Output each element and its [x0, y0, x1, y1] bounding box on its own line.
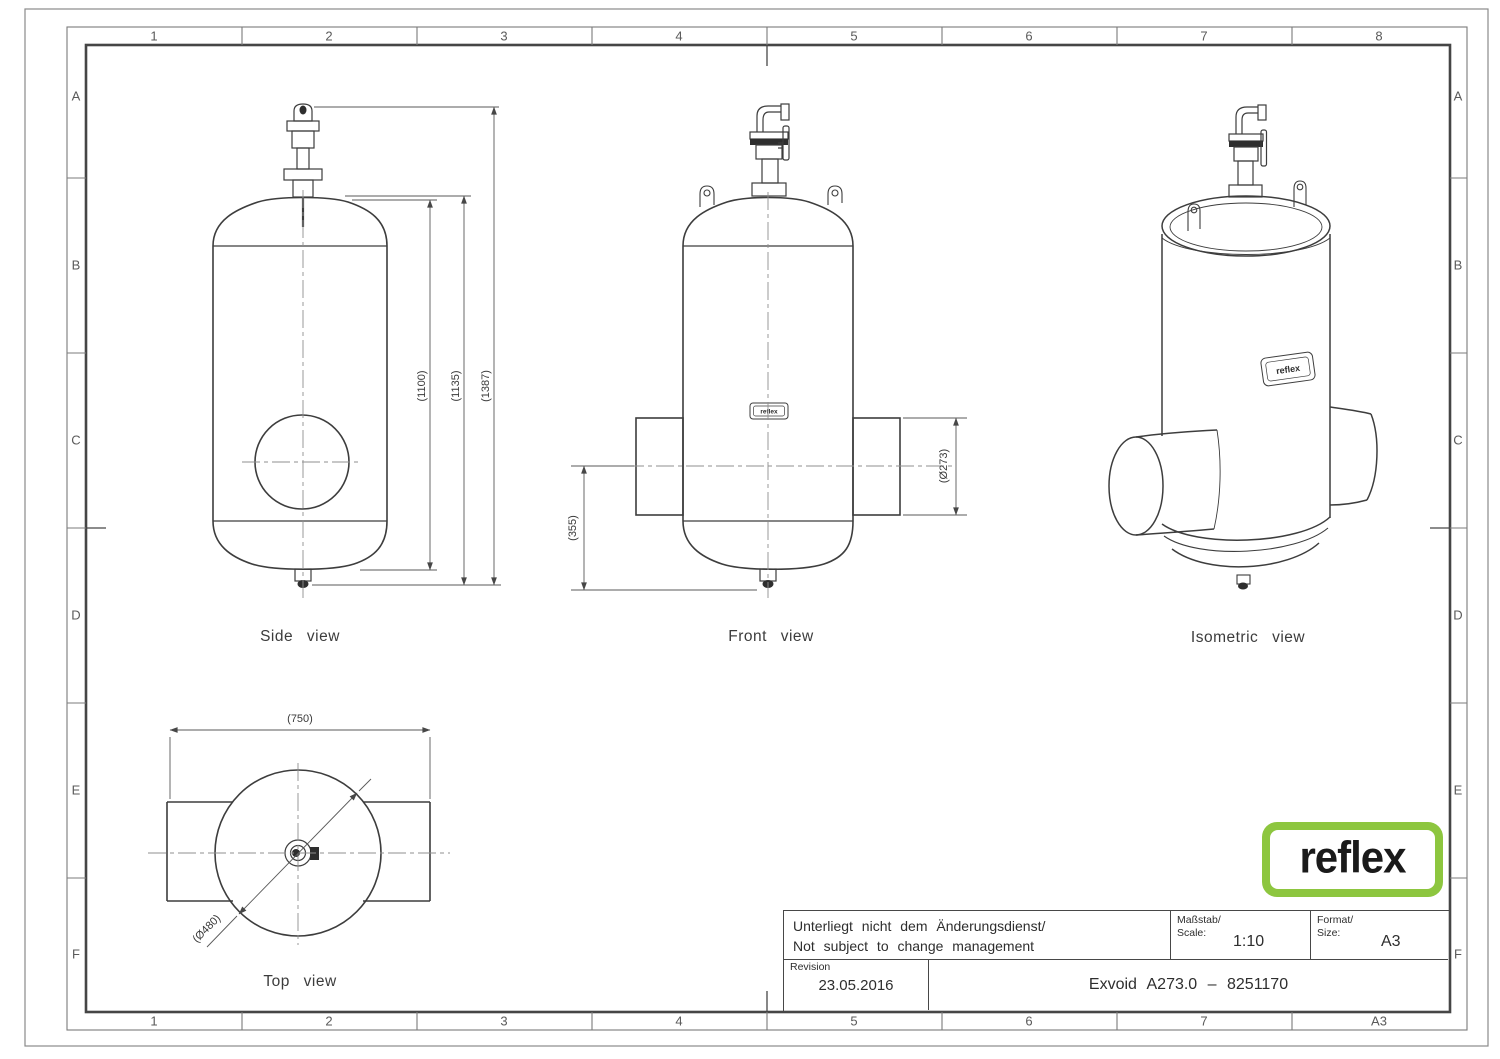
grid-col-label-bottom: 6	[1025, 1014, 1032, 1029]
grid-col-label: 5	[850, 29, 857, 44]
isometric-view: reflex	[1109, 105, 1377, 590]
isometric-view-caption: Isometric view	[1191, 629, 1305, 647]
dimension-label-273: (Ø273)	[938, 449, 950, 483]
grid-row-label: B	[72, 258, 81, 273]
grid-row-label: F	[72, 947, 80, 962]
side-view-dimensions: (1100) (1135) (1387)	[312, 107, 501, 585]
side-view-centerlines	[242, 190, 362, 600]
format-cell: Format/ Size: A3	[1311, 911, 1448, 959]
top-view-dimensions: (750) (Ø480)	[170, 713, 430, 947]
change-note-cell: Unterliegt nicht dem Änderungsdienst/ No…	[784, 911, 1171, 959]
grid-row-label-right: C	[1453, 433, 1462, 448]
change-note-en: Not subject to change management	[793, 936, 1170, 956]
reflex-logo-text: reflex	[1299, 833, 1405, 883]
isometric-vent-valve	[1229, 105, 1267, 197]
grid-col-label: 4	[675, 29, 682, 44]
technical-drawing-canvas: (1100) (1135) (1387)	[0, 0, 1500, 1059]
pipe-connection-right	[853, 418, 900, 515]
grid-ticks	[67, 27, 1467, 1030]
isometric-lifting-lugs	[1188, 181, 1306, 231]
dimension-label-480: (Ø480)	[191, 913, 224, 946]
grid-col-label-bottom: A3	[1371, 1014, 1387, 1029]
front-view-vent-valve	[750, 104, 789, 196]
grid-col-label: 2	[325, 29, 332, 44]
reflex-logo-inner: reflex	[1270, 830, 1435, 889]
dimension-label-1100: (1100)	[416, 371, 428, 402]
grid-row-label-right: B	[1454, 258, 1463, 273]
part-title: Exvoid A273.0 – 8251170	[1089, 976, 1288, 994]
format-value: A3	[1381, 933, 1401, 951]
front-view-dimensions: (Ø273) (355)	[567, 418, 967, 590]
grid-col-label: 7	[1200, 29, 1207, 44]
revision-date: 23.05.2016	[784, 977, 928, 994]
side-view: (1100) (1135) (1387)	[213, 104, 501, 600]
side-view-caption: Side view	[260, 628, 340, 646]
grid-row-label: E	[72, 783, 81, 798]
grid-col-label: 1	[150, 29, 157, 44]
scale-cell: Maßstab/ Scale: 1:10	[1171, 911, 1311, 959]
grid-row-label: D	[71, 608, 80, 623]
format-label-de: Format/	[1317, 914, 1448, 927]
grid-col-label-bottom: 5	[850, 1014, 857, 1029]
grid-col-label-bottom: 7	[1200, 1014, 1207, 1029]
title-block: Unterliegt nicht dem Änderungsdienst/ No…	[783, 910, 1450, 1012]
front-view: reflex (Ø273) (355)	[567, 104, 967, 598]
grid-row-label-right: A	[1454, 89, 1463, 104]
grid-col-label-bottom: 1	[150, 1014, 157, 1029]
reflex-logo: reflex	[1262, 822, 1443, 897]
dimension-label-1387: (1387)	[480, 370, 492, 402]
revision-cell: Revision 23.05.2016	[784, 959, 929, 1010]
grid-col-label: 3	[500, 29, 507, 44]
grid-col-label-bottom: 4	[675, 1014, 682, 1029]
side-view-vent-valve	[284, 104, 322, 227]
dimension-label-1135: (1135)	[450, 371, 462, 402]
grid-col-label: 8	[1375, 29, 1382, 44]
grid-row-label: C	[71, 433, 80, 448]
scale-label-de: Maßstab/	[1177, 914, 1310, 927]
drawing-sheet: (1100) (1135) (1387)	[0, 0, 1500, 1059]
grid-row-label-right: F	[1454, 947, 1462, 962]
front-view-nameplate: reflex	[750, 403, 788, 419]
part-title-cell: Exvoid A273.0 – 8251170	[929, 959, 1448, 1010]
isometric-nameplate: reflex	[1260, 352, 1315, 387]
dimension-label-750: (750)	[287, 713, 313, 725]
grid-row-label-right: D	[1453, 608, 1462, 623]
revision-label: Revision	[784, 960, 928, 974]
change-note-de: Unterliegt nicht dem Änderungsdienst/	[793, 916, 1170, 936]
scale-value: 1:10	[1233, 933, 1264, 951]
nameplate-text: reflex	[760, 409, 778, 416]
grid-row-label-right: E	[1454, 783, 1463, 798]
grid-col-label-bottom: 3	[500, 1014, 507, 1029]
front-view-centerlines	[596, 192, 952, 598]
grid-col-label: 6	[1025, 29, 1032, 44]
isometric-pipe-left	[1109, 430, 1220, 535]
dimension-label-355: (355)	[567, 515, 579, 541]
front-view-caption: Front view	[728, 628, 814, 646]
grid-row-label: A	[72, 89, 81, 104]
pipe-connection-left	[636, 418, 683, 515]
nameplate-text: reflex	[1275, 363, 1300, 376]
top-view-caption: Top view	[263, 973, 336, 991]
top-view: (750) (Ø480)	[148, 713, 450, 947]
grid-col-label-bottom: 2	[325, 1014, 332, 1029]
isometric-pipe-right	[1330, 407, 1377, 505]
handwheel-icon	[1261, 130, 1267, 166]
